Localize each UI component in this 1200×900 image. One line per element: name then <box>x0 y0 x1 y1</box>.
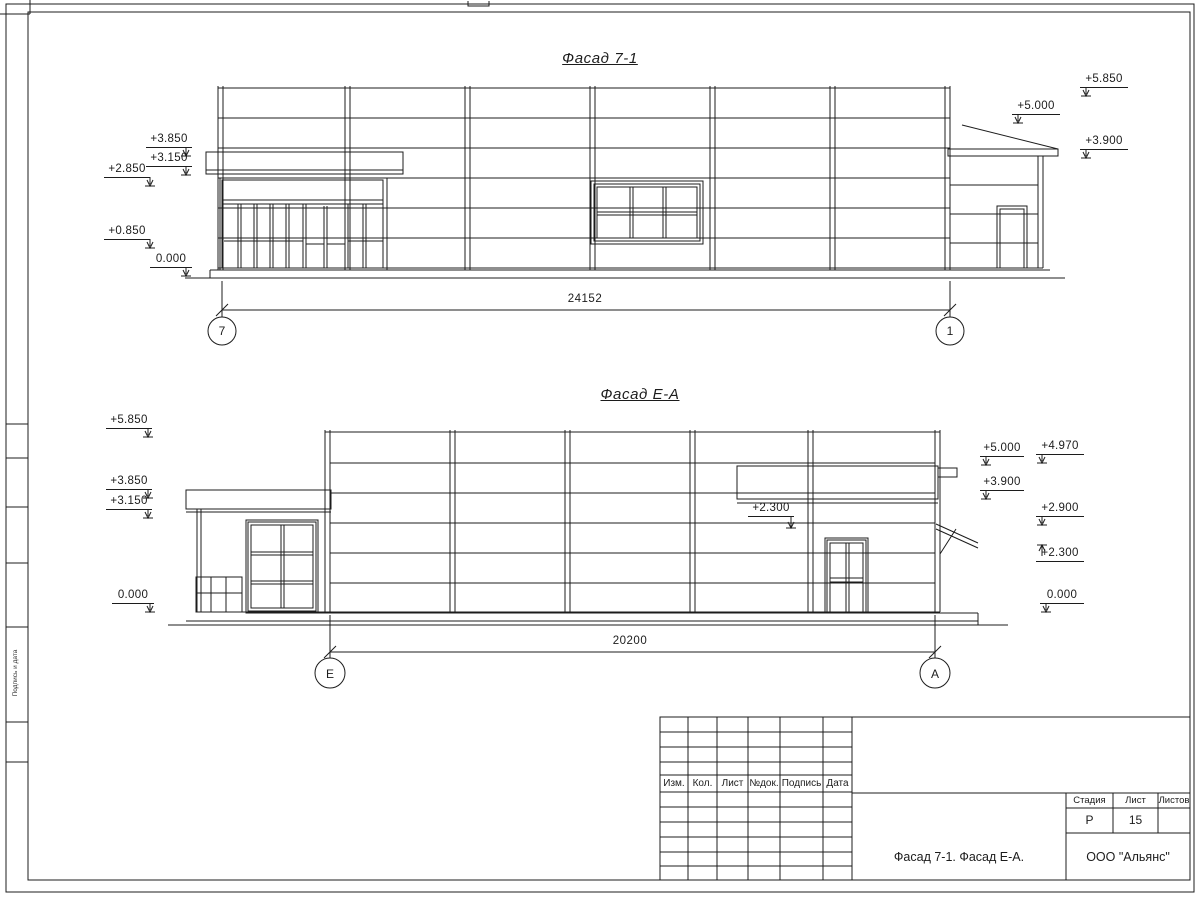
elevation-mark: +2.300 <box>748 502 794 517</box>
drawing-name: Фасад 7-1. Фасад Е-А. <box>855 842 1063 872</box>
titleblock-col-izm: Изм. <box>660 776 688 791</box>
titleblock-col-list: Лист <box>717 776 748 791</box>
elevation-mark: +2.300 <box>1036 547 1084 562</box>
blueprint-page: { "drawing": { "facade1": { "title": "Фа… <box>0 0 1200 900</box>
elevation-mark: +3.850 <box>146 133 192 148</box>
elevation-mark: +4.970 <box>1036 440 1084 455</box>
dimension-text: 24152 <box>535 293 635 305</box>
elevation-mark: +3.850 <box>106 475 152 490</box>
axis-label: 7 <box>207 324 237 338</box>
titleblock-col-data: Дата <box>823 776 852 791</box>
elevation-mark: 0.000 <box>1040 589 1084 604</box>
elevation-mark: +3.150 <box>146 152 192 167</box>
axis-label: Е <box>315 667 345 681</box>
facade2-drawing <box>143 428 1051 688</box>
axis-label: А <box>920 667 950 681</box>
facade1-drawing <box>145 86 1091 345</box>
titleblock-col-podpis: Подпись <box>780 776 823 791</box>
stage-label: Стадия <box>1066 793 1113 808</box>
elevation-mark: 0.000 <box>150 253 192 268</box>
dimension-text: 20200 <box>580 635 680 647</box>
elevation-mark: +5.000 <box>1012 100 1060 115</box>
elevation-mark: 0.000 <box>112 589 154 604</box>
elevation-mark: +5.850 <box>106 414 152 429</box>
elevation-mark: +3.900 <box>980 476 1024 491</box>
titleblock-col-kol: Кол. <box>688 776 717 791</box>
elevation-mark: +2.900 <box>1036 502 1084 517</box>
sheet-number: 15 <box>1113 808 1158 832</box>
elevation-mark: +0.850 <box>104 225 150 240</box>
sheets-label: Листов <box>1158 793 1190 808</box>
side-stamp-vertical-text: Подпись и дата <box>7 627 25 719</box>
elevation-mark: +5.000 <box>980 442 1024 457</box>
elevation-mark: +3.150 <box>106 495 152 510</box>
axis-label: 1 <box>935 324 965 338</box>
sheet-label: Лист <box>1113 793 1158 808</box>
facade2-title: Фасад Е-А <box>520 386 760 403</box>
stage-value: Р <box>1066 808 1113 832</box>
elevation-mark: +5.850 <box>1080 73 1128 88</box>
company-name: ООО "Альянс" <box>1068 842 1188 872</box>
titleblock-col-ndok: №док. <box>748 776 780 791</box>
elevation-mark: +3.900 <box>1080 135 1128 150</box>
elevation-mark: +2.850 <box>104 163 150 178</box>
facade1-title: Фасад 7-1 <box>480 50 720 67</box>
